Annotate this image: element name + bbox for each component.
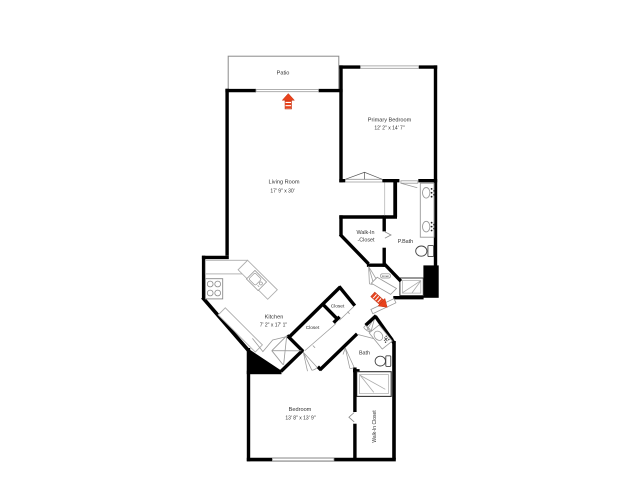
svg-text:P.Bath: P.Bath — [398, 239, 414, 245]
svg-text:7' 2" x 17' 1": 7' 2" x 17' 1" — [260, 322, 288, 328]
svg-text:Bath: Bath — [359, 351, 370, 357]
svg-text:17' 9" x 30': 17' 9" x 30' — [270, 189, 294, 195]
svg-text:Closet: Closet — [306, 325, 320, 331]
svg-text:Patio: Patio — [277, 71, 290, 77]
svg-text:Primary Bedroom: Primary Bedroom — [368, 117, 412, 123]
svg-text:13' 8" x 13' 9": 13' 8" x 13' 9" — [285, 416, 315, 422]
svg-text:Kitchen: Kitchen — [265, 315, 284, 321]
svg-text:Walk-In Closet: Walk-In Closet — [372, 410, 378, 443]
svg-text:Bedroom: Bedroom — [289, 407, 312, 413]
svg-text:Linen: Linen — [382, 274, 390, 278]
svg-text:Living Room: Living Room — [268, 179, 299, 185]
svg-text:Walk-In: Walk-In — [356, 230, 374, 236]
svg-text:-Closet: -Closet — [357, 238, 375, 244]
svg-text:12' 2" x 14' 7": 12' 2" x 14' 7" — [374, 126, 404, 132]
svg-text:Closet: Closet — [331, 303, 345, 309]
